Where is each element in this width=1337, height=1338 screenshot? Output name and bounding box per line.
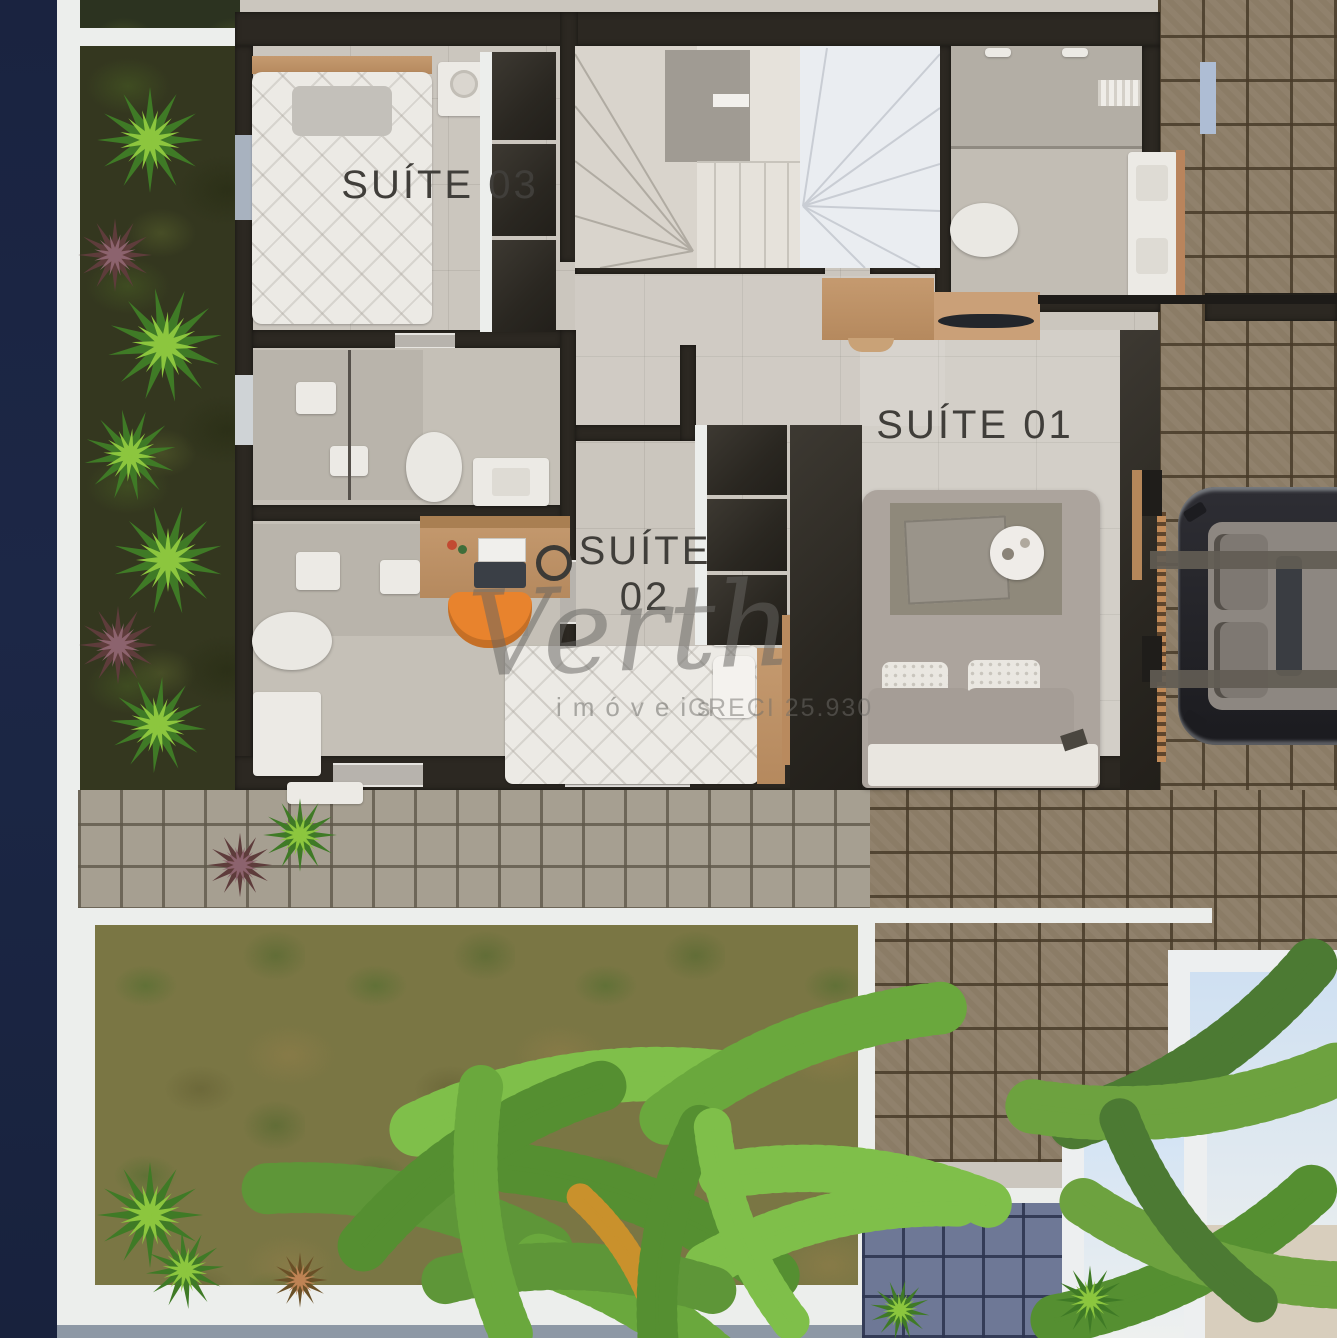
plant-rosette [97,87,203,193]
plant-rosette-purple [78,218,152,292]
plant-rosette [91,658,226,793]
floor-plan-canvas: SUÍTE 03 [0,0,1337,1338]
plant-rosette [91,271,238,418]
plant-rosette-purple [208,833,272,897]
palm-foliage-lawn [267,992,991,1338]
plant-rosette [263,798,337,872]
agave-plant [97,1162,203,1268]
plant-rosette [65,390,195,520]
red-plant [272,1252,327,1307]
vegetation-layer [0,0,1337,1338]
plant-rosette-purple [79,606,157,684]
plant-rosette [100,492,235,627]
